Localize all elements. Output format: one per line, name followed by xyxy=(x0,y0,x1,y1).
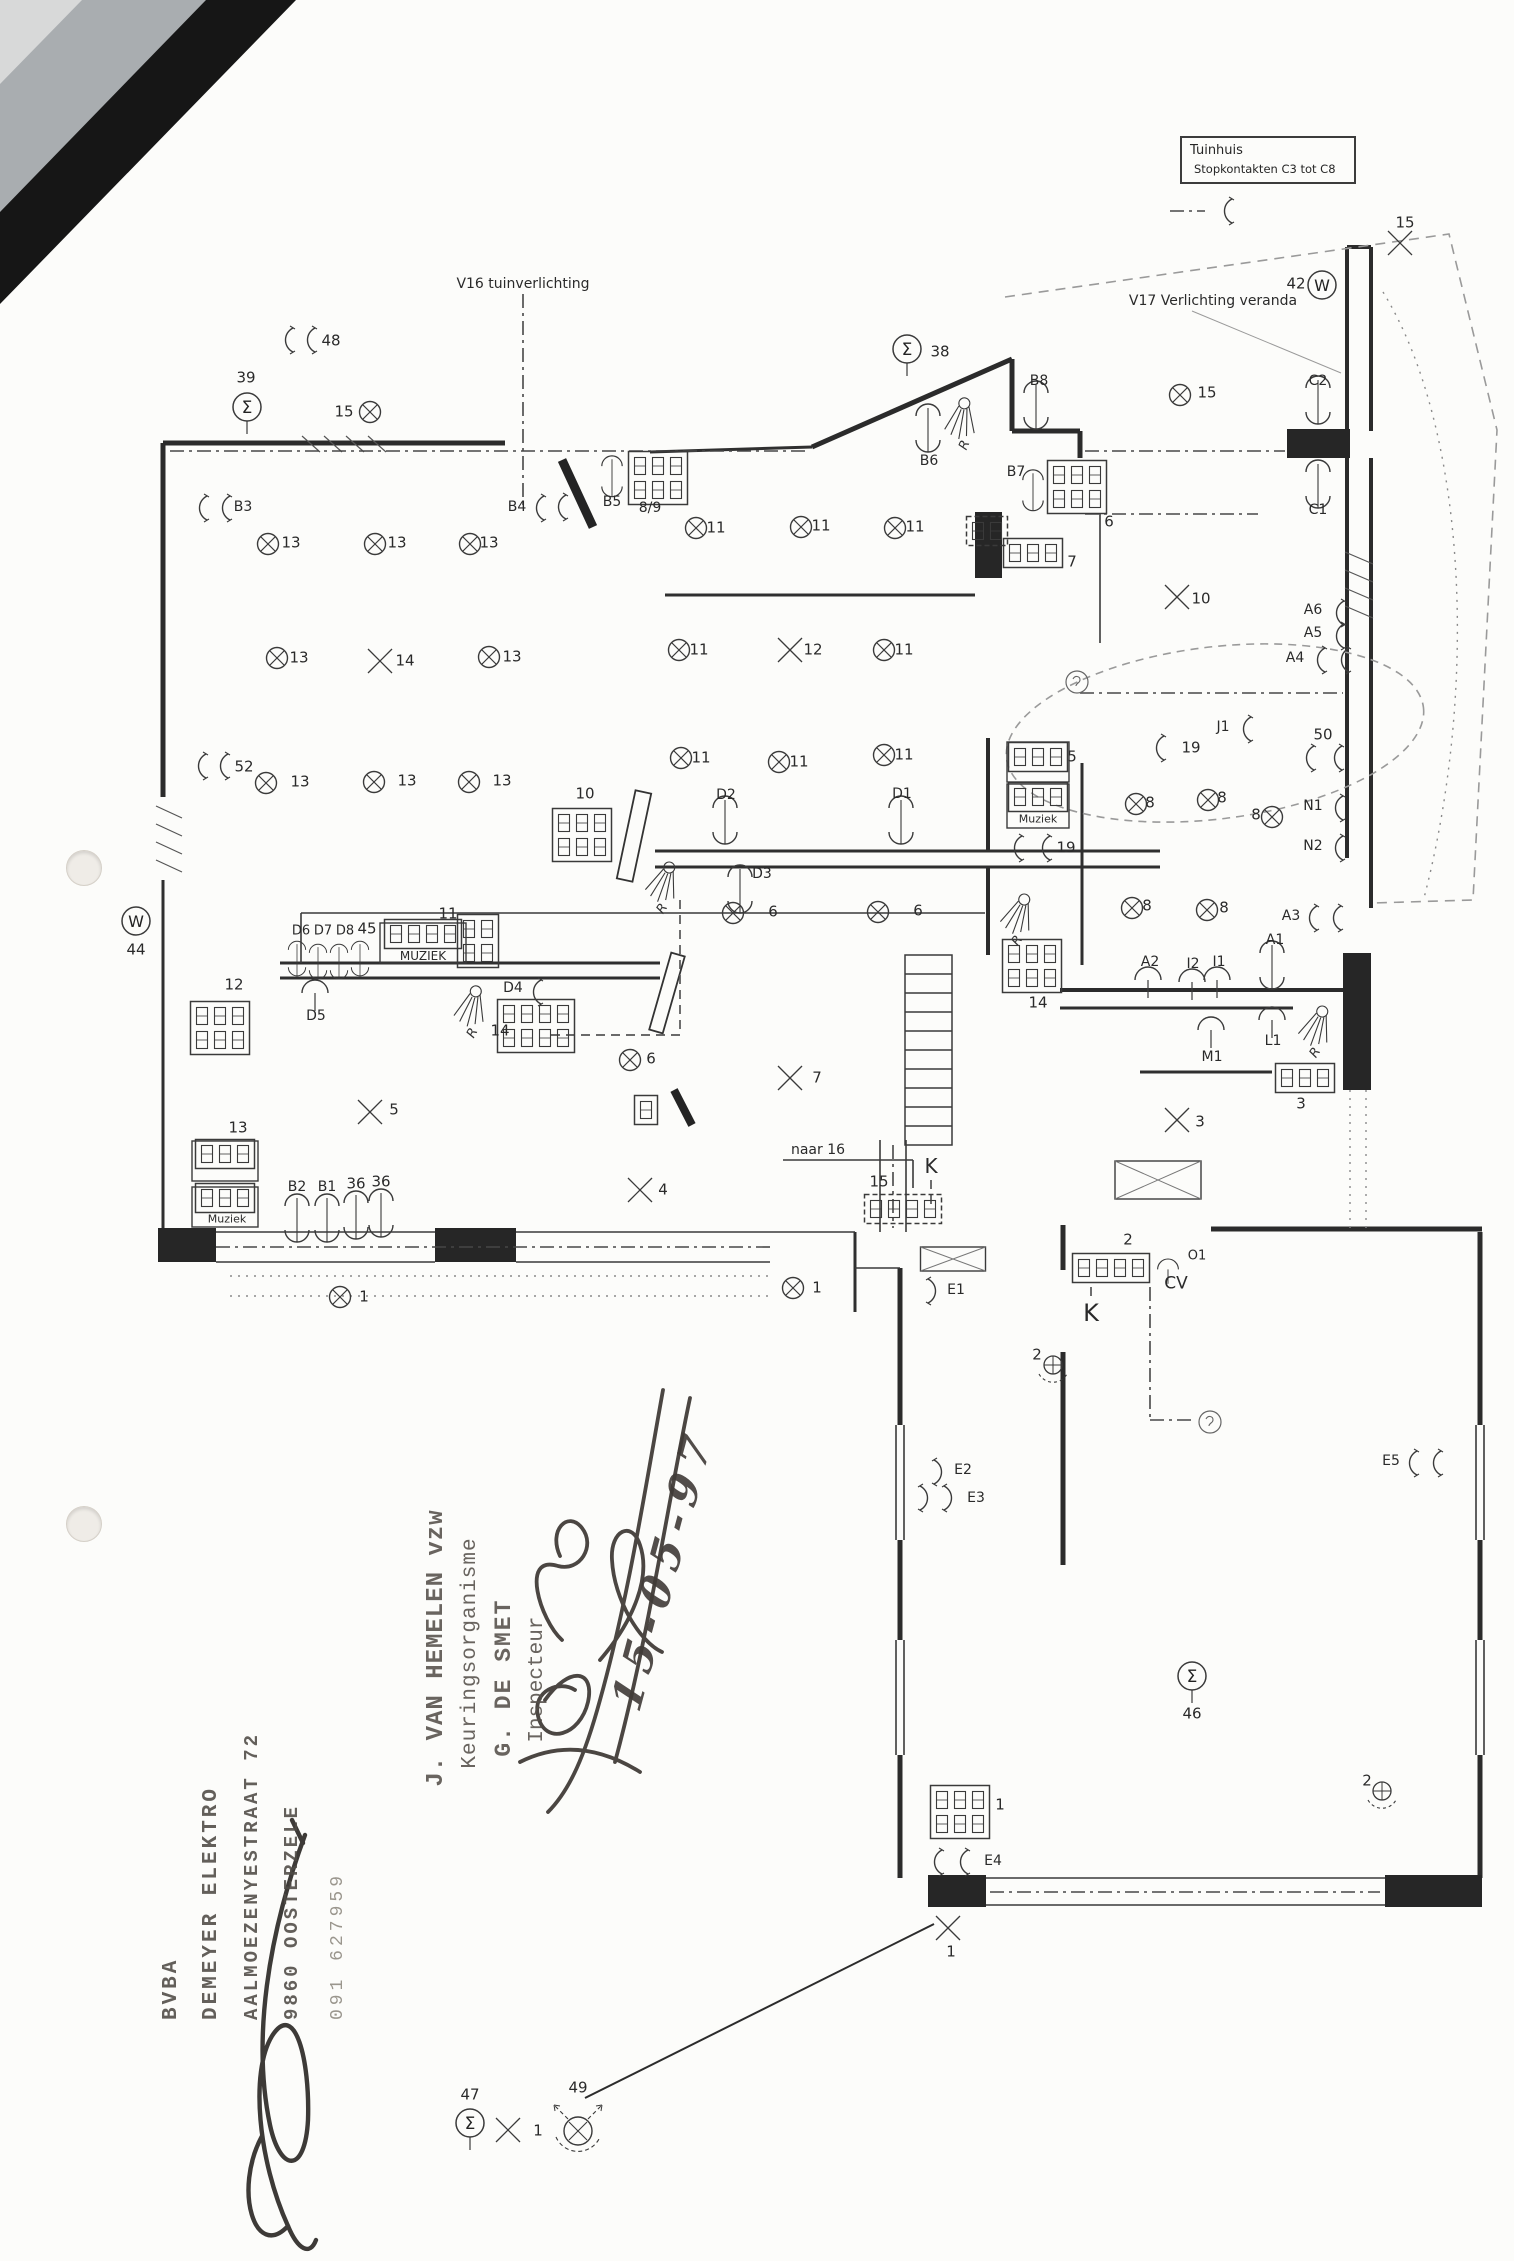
diagram-label: 8 xyxy=(1217,791,1227,806)
sconce-symbol xyxy=(1401,1448,1425,1478)
diagram-label: E1 xyxy=(947,1283,965,1297)
diagram-label: 13 xyxy=(281,536,300,551)
diagram-label: 45 xyxy=(357,922,376,937)
lamp-symbol xyxy=(865,899,891,925)
pend2-symbol xyxy=(348,940,372,980)
lamp-symbol xyxy=(882,515,908,541)
diagram-label: D7 xyxy=(314,925,332,938)
diagram-label: 8 xyxy=(1142,899,1152,914)
diagram-label: N1 xyxy=(1303,799,1322,813)
diagram-label: MUZIEK xyxy=(400,950,446,962)
xlamp-symbol xyxy=(492,2114,524,2146)
qcirc-symbol xyxy=(1196,1408,1224,1436)
diagram-label: 38 xyxy=(930,345,949,360)
bank-symbol xyxy=(966,516,1009,547)
diagram-label: J1 xyxy=(1216,720,1229,734)
lamp-symbol xyxy=(476,644,502,670)
lamp-symbol xyxy=(871,637,897,663)
xlamp-symbol xyxy=(1161,1104,1193,1136)
diagram-label: 15 xyxy=(334,405,353,420)
diagram-label: L1 xyxy=(1265,1034,1282,1048)
diagram-label: A3 xyxy=(1282,909,1300,923)
diagram-label: 11 xyxy=(438,907,457,922)
lamp-symbol xyxy=(255,531,281,557)
svg-text:W: W xyxy=(128,912,144,931)
xlamp-symbol xyxy=(1161,581,1193,613)
diagram-label: D1 xyxy=(892,787,912,801)
lamp-symbol xyxy=(253,770,279,796)
contractor-name-line2: DEMEYER ELEKTRO xyxy=(192,1732,232,2020)
diagram-label: N2 xyxy=(1303,839,1322,853)
svg-text:Σ: Σ xyxy=(242,398,253,418)
lamp-symbol xyxy=(1119,895,1145,921)
lamp-symbol xyxy=(683,515,709,541)
diagram-label: 12 xyxy=(224,978,243,993)
wcirc-symbol: W xyxy=(1305,268,1339,302)
diagram-label: D4 xyxy=(503,981,523,995)
contractor-stamp: BVBA DEMEYER ELEKTRO AALMOEZENYESTRAAT 7… xyxy=(152,1732,348,2020)
sconce-symbol xyxy=(1326,743,1350,773)
diagram-label: 11 xyxy=(789,755,808,770)
diagram-label: 2 xyxy=(1123,1233,1133,1248)
sconce-symbol xyxy=(912,1483,936,1513)
sconce-symbol xyxy=(1301,903,1325,933)
diagram-label: 1 xyxy=(946,1945,956,1960)
diagram-label: 8 xyxy=(1145,796,1155,811)
diagram-label: 1 xyxy=(995,1798,1005,1813)
lamp-symbol xyxy=(766,749,792,775)
flood-symbol xyxy=(548,2099,608,2163)
diagram-label: A4 xyxy=(1286,651,1304,665)
sconce-symbol xyxy=(212,751,236,781)
inspector-name: G. DE SMET xyxy=(487,1509,521,1786)
xlamp-symbol xyxy=(774,634,806,666)
diagram-label: 8 xyxy=(1219,901,1229,916)
lamp-symbol xyxy=(668,745,694,771)
diagram-label: 13 xyxy=(397,774,416,789)
tuinhuis-note-box: Tuinhuis Stopkontakten C3 tot C8 xyxy=(1180,136,1356,184)
diagram-label: B8 xyxy=(1030,374,1049,388)
diagram-label: 14 xyxy=(395,654,414,669)
note-title: Tuinhuis xyxy=(1190,143,1348,158)
diagram-label: 3 xyxy=(1296,1097,1306,1112)
contractor-city: 9860 OOSTERZELE xyxy=(272,1732,312,2020)
diagram-label: A6 xyxy=(1304,603,1322,617)
diagram-label: 7 xyxy=(1067,555,1077,570)
pend2-symbol xyxy=(884,794,918,850)
bank-symbol xyxy=(1008,782,1069,813)
sconce-symbol xyxy=(550,492,574,522)
inspector-title: Inspecteur xyxy=(521,1509,554,1786)
sconce-symbol xyxy=(1006,833,1030,863)
bank-symbol xyxy=(1003,538,1064,569)
diagram-label: 13 xyxy=(492,774,511,789)
note-body: Stopkontakten C3 tot C8 xyxy=(1190,162,1348,176)
sconce-symbol xyxy=(1327,793,1351,823)
diagram-label: 11 xyxy=(689,643,708,658)
diagram-label: 5 xyxy=(1067,750,1077,765)
sigma-symbol: Σ xyxy=(1175,1659,1209,1705)
sconce-symbol xyxy=(926,1847,950,1877)
diagram-label: 10 xyxy=(575,787,594,802)
sconce-symbol xyxy=(1034,833,1058,863)
diagram-label: 14 xyxy=(490,1024,509,1039)
diagram-label: 39 xyxy=(236,371,255,386)
diagram-label: 10 xyxy=(1191,592,1210,607)
diagram-label: 11 xyxy=(894,643,913,658)
reference-line xyxy=(585,1924,934,2098)
svg-text:Σ: Σ xyxy=(1187,1667,1198,1687)
lamp-symbol xyxy=(617,1047,643,1073)
diagram-label: B1 xyxy=(318,1180,337,1194)
diagram-label: E2 xyxy=(954,1463,972,1477)
diagram-label: B4 xyxy=(508,500,527,514)
sconce-symbol xyxy=(528,493,552,523)
contractor-name-line1: BVBA xyxy=(152,1732,192,2020)
lamp-symbol xyxy=(327,1284,353,1310)
inspector-role: Keuringsorganisme xyxy=(454,1509,487,1786)
diagram-label: 6 xyxy=(1104,515,1114,530)
sconce-symbol xyxy=(1309,645,1333,675)
diagram-label: 4 xyxy=(658,1183,668,1198)
diagram-label: 2 xyxy=(1032,1348,1042,1363)
diagram-label: D6 xyxy=(292,925,310,938)
diagram-label: 15 xyxy=(869,1175,888,1190)
diagram-label: 13 xyxy=(289,651,308,666)
diagram-label: 44 xyxy=(126,943,145,958)
bank-symbol xyxy=(1047,460,1108,515)
bank-symbol xyxy=(552,808,613,863)
diagram-label: I1 xyxy=(1212,955,1225,969)
diagram-label: 13 xyxy=(479,536,498,551)
diagram-label: O1 xyxy=(1188,1250,1207,1263)
diagram-label: B6 xyxy=(920,454,939,468)
sconce-symbol xyxy=(191,493,215,523)
lamp-symbol xyxy=(357,399,383,425)
sconce-symbol xyxy=(920,1276,944,1306)
xlamp-symbol xyxy=(354,1096,386,1128)
lamp-symbol xyxy=(780,1275,806,1301)
diagram-label: 2 xyxy=(1362,1774,1372,1789)
diagram-label: Muziek xyxy=(208,1214,246,1225)
xlamp-symbol xyxy=(774,1062,806,1094)
lamp-symbol xyxy=(361,769,387,795)
circuit-lines xyxy=(170,211,1380,1892)
sconce-symbol xyxy=(1333,645,1357,675)
lamp-symbol xyxy=(1259,804,1285,830)
diagram-label: 3 xyxy=(1195,1115,1205,1130)
lamp-symbol xyxy=(1194,897,1220,923)
bank-symbol xyxy=(1072,1253,1151,1284)
diagram-label: B3 xyxy=(234,500,253,514)
diagram-label: A1 xyxy=(1266,933,1284,947)
bank-symbol xyxy=(930,1785,991,1840)
diagram-label: 11 xyxy=(706,521,725,536)
sconce-symbol xyxy=(1148,733,1172,763)
veranda-walls xyxy=(988,247,1371,990)
diagram-label: 52 xyxy=(234,760,253,775)
diagram-label: 42 xyxy=(1286,277,1305,292)
diagram-label: 50 xyxy=(1313,728,1332,743)
bank-symbol xyxy=(384,919,463,950)
diagram-label: 13 xyxy=(290,775,309,790)
diagram-label: B7 xyxy=(1007,465,1026,479)
sconce-symbol xyxy=(1327,833,1351,863)
lamp-symbol xyxy=(264,645,290,671)
sconce-symbol xyxy=(1298,743,1322,773)
diagram-label: 11 xyxy=(894,748,913,763)
dome-symbol xyxy=(1194,1014,1228,1050)
diagram-label: 8/9 xyxy=(639,501,662,515)
diagram-label: 46 xyxy=(1182,1707,1201,1722)
thin-walls xyxy=(216,513,1484,1905)
diagram-label: 5 xyxy=(389,1103,399,1118)
lamp-symbol xyxy=(362,531,388,557)
sconce-symbol xyxy=(1216,196,1240,226)
diagram-label: A2 xyxy=(1141,955,1159,969)
inspector-stamp: J. VAN HEMELEN vzw Keuringsorganisme G. … xyxy=(420,1509,554,1786)
pend2-symbol xyxy=(364,1187,398,1243)
xlamp-symbol xyxy=(624,1174,656,1206)
diagram-label: 1 xyxy=(812,1281,822,1296)
sconce-symbol xyxy=(1425,1448,1449,1478)
staircase xyxy=(905,955,952,1145)
diagram-label: E3 xyxy=(967,1491,985,1505)
svg-text:Σ: Σ xyxy=(465,2114,476,2134)
diagram-label: 49 xyxy=(568,2081,587,2096)
contractor-street: AALMOEZENYESTRAAT 72 xyxy=(232,1732,272,2020)
diagram-label: V17 Verlichting veranda xyxy=(1129,294,1297,308)
sconce-symbol xyxy=(1235,714,1259,744)
bank-symbol xyxy=(195,1139,256,1170)
diagram-label: 15 xyxy=(1197,386,1216,401)
xlamp-symbol xyxy=(1384,227,1416,259)
diagram-label: 13 xyxy=(228,1121,247,1136)
scanned-floorplan-page: ΣΣΣΣWWRRRRR V16 tuinverlichting48391538B… xyxy=(0,0,1514,2261)
diagram-label: 6 xyxy=(913,904,923,919)
svg-text:Σ: Σ xyxy=(902,340,913,360)
diagram-label: 19 xyxy=(1056,841,1075,856)
sconce-symbol xyxy=(1325,903,1349,933)
diagram-label: 36 xyxy=(346,1177,365,1192)
diagram-label: 13 xyxy=(387,536,406,551)
diagram-label: CV xyxy=(1164,1276,1188,1293)
bank-symbol xyxy=(1008,742,1069,773)
window-hatches xyxy=(156,436,1373,872)
diagram-label: V16 tuinverlichting xyxy=(456,277,589,291)
contractor-phone: 091 627959 xyxy=(328,1732,348,2020)
diagram-label: 1 xyxy=(359,1290,369,1305)
diagram-label: 8 xyxy=(1251,808,1261,823)
diagram-label: 1 xyxy=(533,2124,543,2139)
wcirc-symbol: W xyxy=(119,904,153,938)
lamp-symbol xyxy=(871,742,897,768)
lamp-symbol xyxy=(456,769,482,795)
bank-symbol xyxy=(1002,939,1063,994)
diagram-label: I2 xyxy=(1186,957,1199,971)
diagram-label: 6 xyxy=(768,905,778,920)
xlamp-symbol xyxy=(364,645,396,677)
sigma-symbol: Σ xyxy=(453,2106,487,2152)
sconce-symbol xyxy=(190,751,214,781)
sconce-symbol xyxy=(277,325,301,355)
diagram-label: 6 xyxy=(646,1052,656,1067)
sconce-symbol xyxy=(936,1483,960,1513)
xbox-symbol xyxy=(1114,1160,1202,1200)
diagram-label: 11 xyxy=(811,519,830,534)
lamp-symbol xyxy=(1167,382,1193,408)
inspector-org: J. VAN HEMELEN vzw xyxy=(420,1509,454,1786)
svg-text:W: W xyxy=(1314,276,1330,295)
sigma-symbol: Σ xyxy=(230,390,264,436)
lamp-symbol xyxy=(666,637,692,663)
diagram-label: D5 xyxy=(306,1009,326,1023)
sconce-symbol xyxy=(299,325,323,355)
bank-symbol xyxy=(1275,1063,1336,1094)
diagram-label: E5 xyxy=(1382,1454,1400,1468)
diagram-label: 14 xyxy=(1028,996,1047,1011)
diagram-label: 48 xyxy=(321,334,340,349)
diagram-label: K xyxy=(924,1156,937,1176)
bank-symbol xyxy=(864,1194,943,1225)
diagram-label: 7 xyxy=(812,1071,822,1086)
pend2-symbol xyxy=(280,1192,314,1248)
diagram-label: 12 xyxy=(803,643,822,658)
diagram-label: D2 xyxy=(716,788,736,802)
diagram-label: E4 xyxy=(984,1854,1002,1868)
sconce-symbol xyxy=(952,1847,976,1877)
diagram-label: B2 xyxy=(288,1180,307,1194)
bank-symbol xyxy=(190,1001,251,1056)
diagram-label: D8 xyxy=(336,925,354,938)
xbox-symbol xyxy=(920,1246,987,1272)
diagram-label: D3 xyxy=(752,867,772,881)
diagram-label: 36 xyxy=(371,1175,390,1190)
diagram-label: C2 xyxy=(1309,374,1328,388)
lamp-symbol xyxy=(788,514,814,540)
qcirc-symbol xyxy=(1063,668,1091,696)
diagram-label: 15 xyxy=(1395,216,1414,231)
diagram-label: B5 xyxy=(603,495,622,509)
scan-corner-fold xyxy=(0,0,296,304)
diagram-label: 11 xyxy=(905,520,924,535)
bank-symbol xyxy=(195,1183,256,1214)
diagram-label: 47 xyxy=(460,2088,479,2103)
bank-symbol xyxy=(628,451,689,506)
diagram-label: A5 xyxy=(1304,626,1322,640)
bank-symbol xyxy=(634,1095,659,1126)
diagram-label: Muziek xyxy=(1019,814,1057,825)
diagram-label: 19 xyxy=(1181,741,1200,756)
punch-hole-top xyxy=(66,850,102,886)
sigma-symbol: Σ xyxy=(890,332,924,378)
diagram-label: K xyxy=(1083,1301,1099,1325)
diagram-label: C1 xyxy=(1309,503,1328,517)
diagram-label: M1 xyxy=(1202,1050,1223,1064)
diagram-label: 11 xyxy=(691,751,710,766)
bank-symbol xyxy=(457,914,500,969)
diagram-label: naar 16 xyxy=(791,1143,845,1157)
punch-hole-bottom xyxy=(66,1506,102,1542)
diagram-label: 13 xyxy=(502,650,521,665)
xlamp-symbol xyxy=(932,1912,964,1944)
